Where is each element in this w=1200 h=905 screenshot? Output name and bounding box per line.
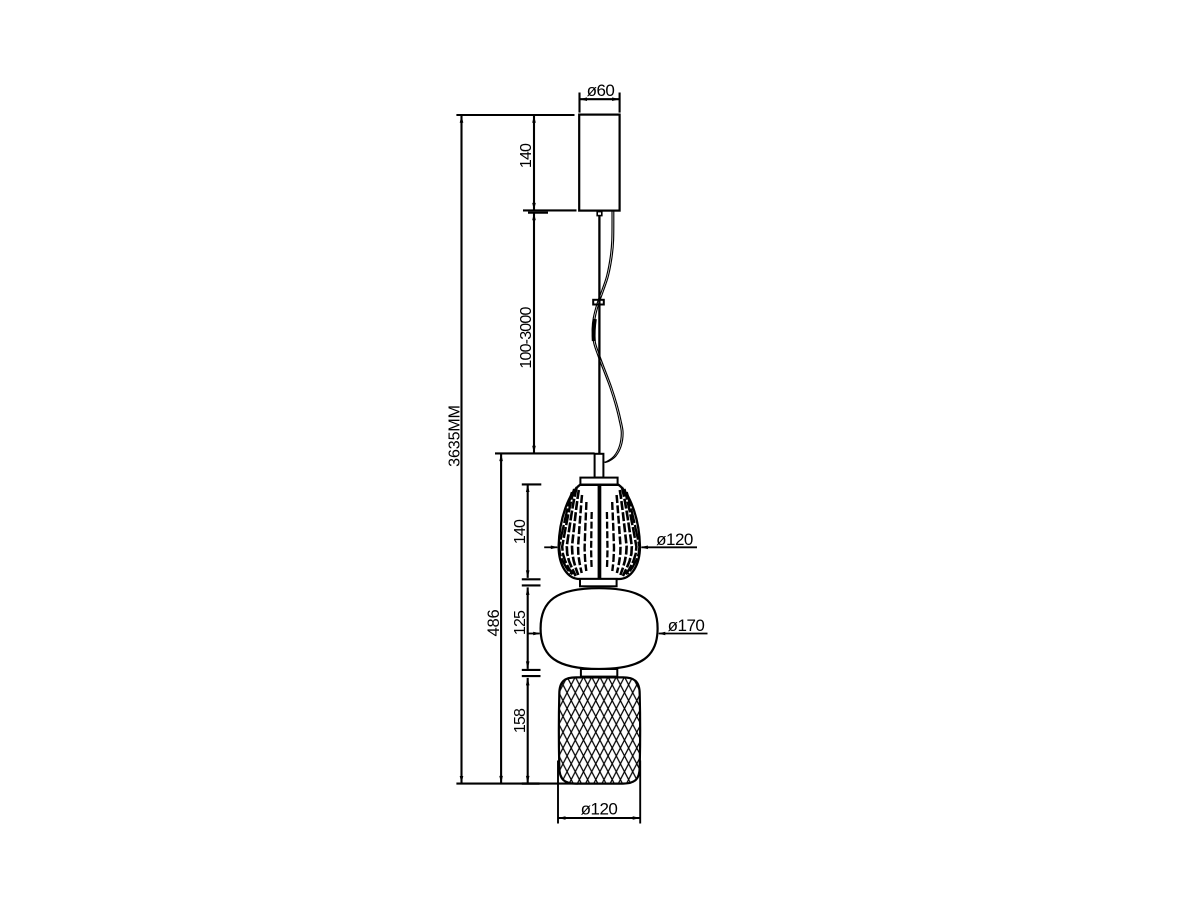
svg-text:3635MM: 3635MM (446, 405, 463, 467)
svg-text:158: 158 (512, 708, 529, 733)
svg-text:ø60: ø60 (587, 81, 615, 100)
svg-text:486: 486 (485, 610, 503, 637)
svg-text:ø170: ø170 (668, 616, 705, 635)
svg-text:140: 140 (512, 519, 529, 544)
svg-text:100-3000: 100-3000 (518, 306, 535, 368)
svg-text:ø120: ø120 (581, 800, 618, 819)
svg-text:125: 125 (512, 610, 529, 635)
svg-text:140: 140 (518, 143, 535, 168)
svg-text:ø120: ø120 (656, 530, 693, 549)
